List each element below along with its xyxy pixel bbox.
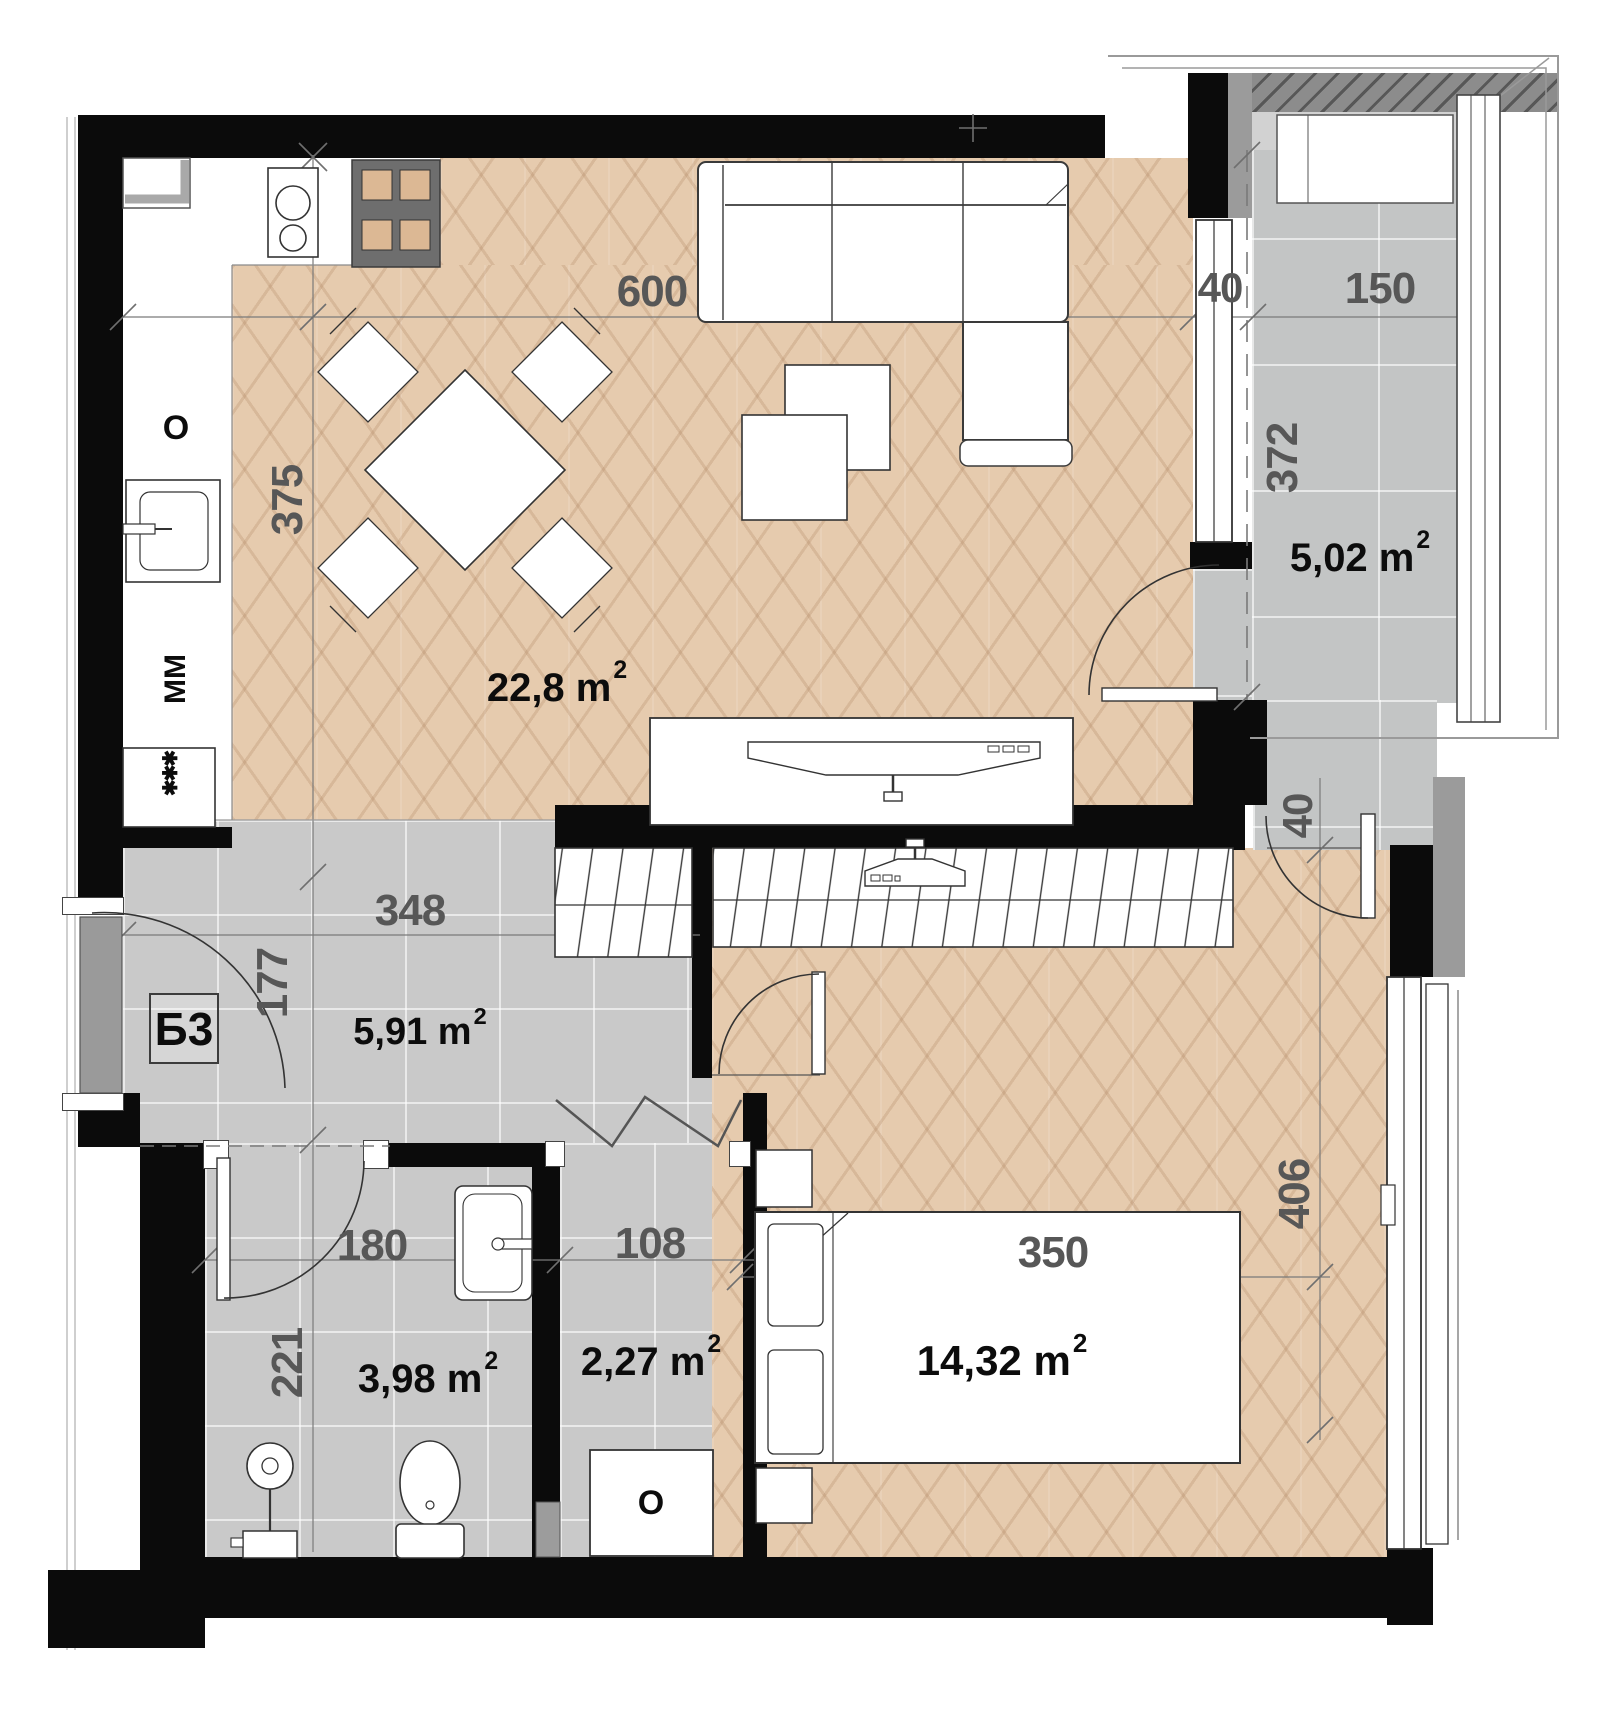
dim-terrace-ledge: 40 bbox=[1274, 766, 1322, 866]
dim-living-width: 600 bbox=[582, 268, 722, 316]
shower bbox=[231, 1443, 297, 1558]
area-label-bedroom: 14,32 m2 bbox=[852, 1337, 1152, 1385]
folding-door bbox=[556, 1097, 741, 1146]
bedroom-door bbox=[719, 972, 825, 1074]
dim-bathroom-width: 180 bbox=[302, 1222, 442, 1270]
dining-table bbox=[365, 370, 565, 570]
dim-bedroom-depth: 406 bbox=[1271, 1124, 1319, 1264]
area-label-living: 22,8 m2 bbox=[407, 666, 707, 711]
freezer-label: ✱✱✱ bbox=[150, 724, 190, 824]
cooktop bbox=[268, 168, 318, 257]
dim-hall-width: 348 bbox=[340, 887, 480, 935]
dim-terrace-depth: 372 bbox=[1259, 388, 1307, 528]
dim-storage-width: 108 bbox=[580, 1220, 720, 1268]
corner-cabinet bbox=[123, 158, 190, 208]
area-label-hall: 5,91 m2 bbox=[270, 1011, 570, 1054]
dim-hall-depth: 177 bbox=[249, 913, 297, 1053]
bath-duct bbox=[536, 1502, 560, 1557]
pillow bbox=[768, 1224, 823, 1326]
dim-terrace-wall: 40 bbox=[1170, 264, 1270, 312]
wardrobe-bedroom bbox=[713, 848, 1233, 947]
area-label-terrace: 5,02 m2 bbox=[1210, 536, 1510, 581]
kitchen-sink bbox=[123, 480, 220, 582]
terrace-door-living bbox=[1089, 565, 1219, 701]
dishwasher-label: MM bbox=[156, 629, 196, 729]
dim-bedroom-width: 350 bbox=[983, 1229, 1123, 1277]
dim-terrace-width: 150 bbox=[1310, 265, 1450, 313]
terrace-bench bbox=[1277, 115, 1453, 203]
bath-sink bbox=[455, 1186, 532, 1300]
apartment-unit-label: Б3 bbox=[149, 993, 219, 1064]
plan-linework bbox=[0, 0, 1617, 1732]
wardrobe-hall bbox=[555, 848, 692, 957]
water-heater-label: O bbox=[621, 1479, 681, 1527]
coffee-tables bbox=[742, 365, 890, 520]
terrace-glazing bbox=[1457, 95, 1500, 722]
duct-shaft bbox=[352, 160, 440, 267]
floor-plan: Б3 22,8 m2 5,02 m2 5,91 m2 3,98 m2 2,27 … bbox=[0, 0, 1617, 1732]
dim-living-depth: 375 bbox=[264, 430, 312, 570]
oven-label: O bbox=[146, 404, 206, 452]
bedroom-window bbox=[1381, 977, 1458, 1549]
toilet bbox=[396, 1441, 464, 1558]
dim-bathroom-depth: 221 bbox=[264, 1293, 312, 1433]
area-label-storage: 2,27 m2 bbox=[501, 1340, 801, 1385]
